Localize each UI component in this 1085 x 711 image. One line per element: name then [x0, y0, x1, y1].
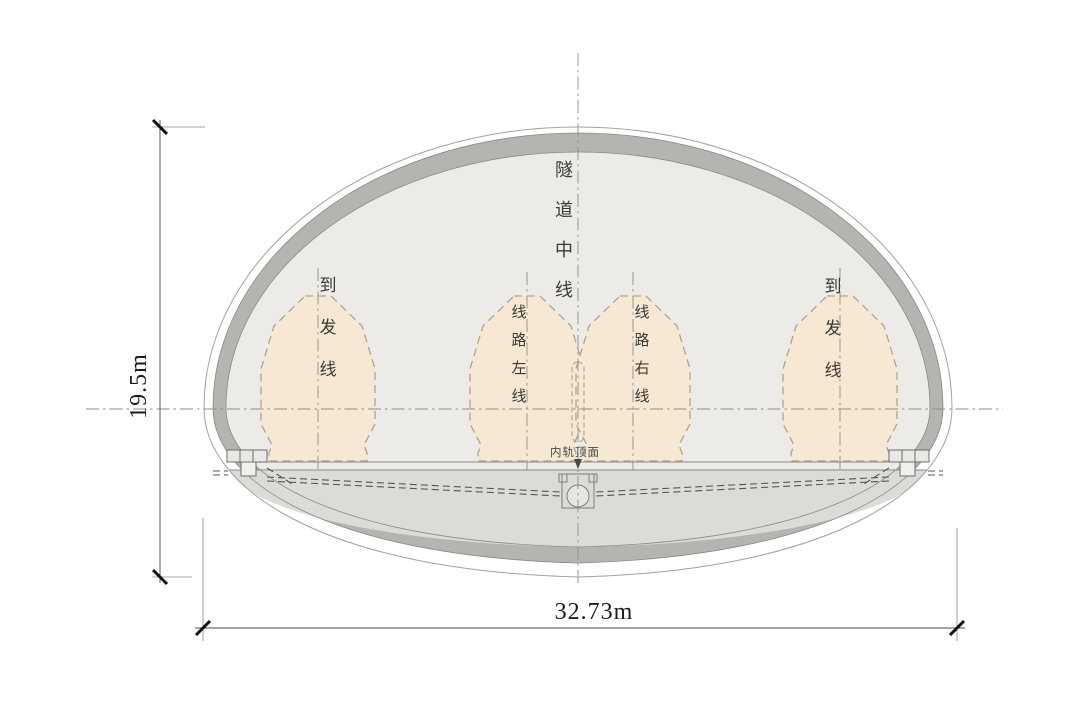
label-right-arrival-departure: 到发线 [825, 277, 842, 380]
label-left-arrival-departure: 到发线 [320, 276, 337, 379]
tunnel-cross-section-diagram: 19.5m 32.73m 隧道中线 到发线 线路左线 线路右线 到发线 内轨顶面 [0, 0, 1085, 711]
height-dimension: 19.5m [126, 120, 205, 584]
dim-height-label: 19.5m [126, 353, 152, 419]
diagram-canvas: 19.5m 32.73m 隧道中线 到发线 线路左线 线路右线 到发线 内轨顶面 [0, 0, 1085, 711]
dim-width-label: 32.73m [555, 599, 634, 625]
label-rail-top-surface: 内轨顶面 [550, 445, 600, 459]
